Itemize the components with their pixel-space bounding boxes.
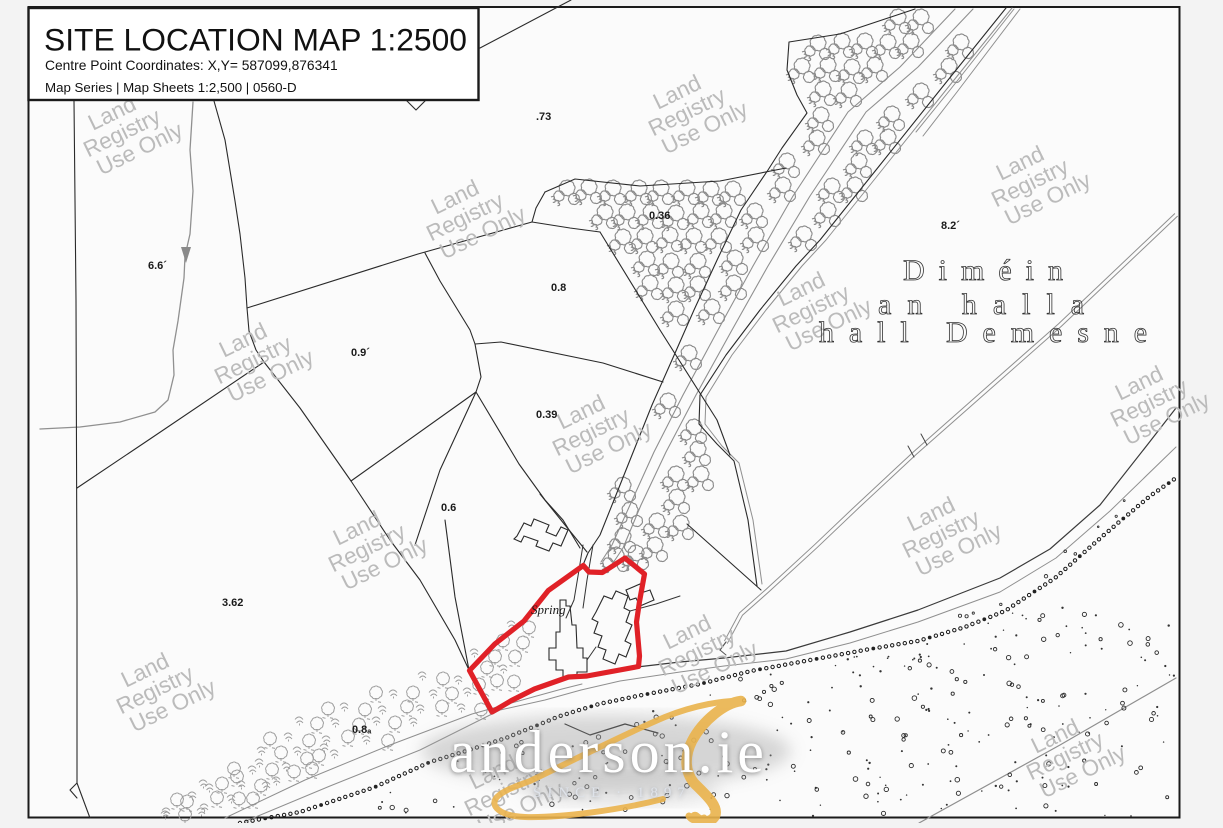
svg-text:0.36: 0.36 bbox=[649, 210, 670, 222]
svg-text:SINCE · 1897: SINCE · 1897 bbox=[533, 785, 691, 801]
svg-text:0.8: 0.8 bbox=[551, 282, 566, 294]
svg-text:Centre Point Coordinates: X,Y=: Centre Point Coordinates: X,Y= 587099,87… bbox=[45, 58, 338, 73]
svg-text:6.6´: 6.6´ bbox=[148, 260, 167, 272]
svg-text:3.62: 3.62 bbox=[222, 597, 243, 609]
svg-text:anderson.ie: anderson.ie bbox=[449, 719, 768, 785]
svg-text:.73: .73 bbox=[536, 111, 551, 123]
svg-text:SITE LOCATION MAP 1:2500: SITE LOCATION MAP 1:2500 bbox=[44, 22, 467, 58]
svg-text:0.9´: 0.9´ bbox=[351, 347, 370, 359]
svg-text:hall Demesne: hall Demesne bbox=[819, 316, 1162, 349]
svg-text:0.8ₐ: 0.8ₐ bbox=[352, 724, 372, 736]
svg-text:0.39: 0.39 bbox=[536, 409, 557, 421]
svg-text:0.6: 0.6 bbox=[441, 502, 456, 514]
svg-text:8.2´: 8.2´ bbox=[941, 220, 960, 232]
svg-text:Diméin: Diméin bbox=[903, 254, 1077, 287]
svg-text:Spring: Spring bbox=[531, 602, 566, 617]
svg-text:Map Series | Map Sheets 1:2,50: Map Series | Map Sheets 1:2,500 | 0560-D bbox=[45, 80, 297, 95]
